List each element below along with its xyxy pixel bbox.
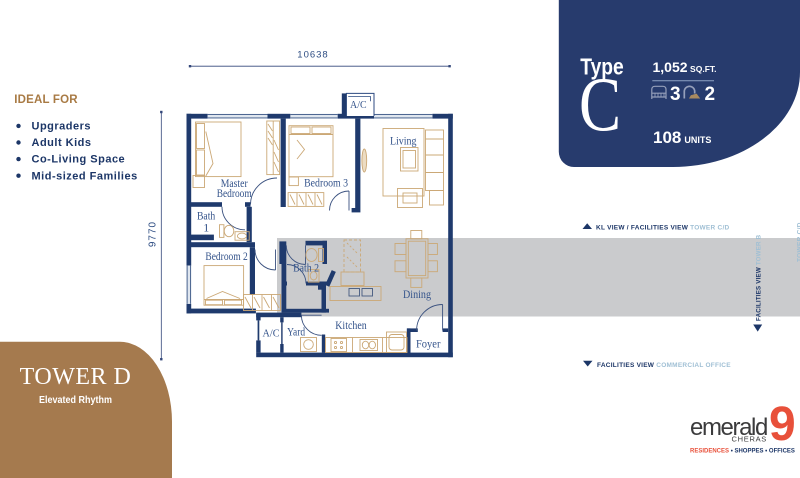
svg-text:Bedroom 2: Bedroom 2 — [205, 249, 247, 263]
svg-text:Yard: Yard — [287, 325, 305, 339]
svg-text:Living: Living — [390, 133, 417, 147]
svg-text:Upgraders: Upgraders — [32, 121, 92, 133]
svg-text:TOWER D: TOWER D — [20, 364, 132, 390]
svg-text:IDEAL FOR: IDEAL FOR — [14, 94, 78, 106]
svg-text:Co-Living Space: Co-Living Space — [32, 154, 126, 166]
svg-text:FACILITIES VIEW TOWER B: FACILITIES VIEW TOWER B — [755, 234, 762, 321]
svg-text:Bath 2: Bath 2 — [293, 260, 319, 274]
svg-text:10638: 10638 — [297, 50, 328, 61]
svg-text:Dining: Dining — [403, 287, 431, 301]
svg-text:Mid-sized Families: Mid-sized Families — [32, 170, 138, 182]
svg-text:9770: 9770 — [147, 221, 158, 247]
svg-text:1: 1 — [203, 220, 209, 234]
svg-text:Kitchen: Kitchen — [335, 318, 367, 332]
svg-text:Foyer: Foyer — [416, 336, 441, 350]
svg-text:CHERAS: CHERAS — [732, 435, 767, 444]
svg-text:RESIDENCES • SHOPPES • OFFICES: RESIDENCES • SHOPPES • OFFICES — [690, 448, 795, 454]
svg-text:FACILITIES VIEW COMMERCIAL OFF: FACILITIES VIEW COMMERCIAL OFFICE — [597, 362, 731, 369]
svg-text:C: C — [579, 62, 621, 147]
svg-text:2: 2 — [705, 84, 716, 105]
svg-text:Bedroom 3: Bedroom 3 — [304, 176, 348, 190]
svg-text:Elevated Rhythm: Elevated Rhythm — [39, 394, 112, 406]
svg-text:TOWER C/D: TOWER C/D — [797, 222, 800, 262]
svg-text:A/C: A/C — [350, 99, 367, 111]
svg-text:KL VIEW / FACILITIES VIEW TOWE: KL VIEW / FACILITIES VIEW TOWER C/D — [596, 225, 730, 232]
svg-text:Bedroom: Bedroom — [217, 186, 253, 200]
svg-text:9: 9 — [769, 398, 796, 451]
svg-text:3: 3 — [670, 84, 681, 105]
svg-text:A/C: A/C — [263, 328, 280, 340]
svg-text:Adult Kids: Adult Kids — [32, 137, 92, 149]
